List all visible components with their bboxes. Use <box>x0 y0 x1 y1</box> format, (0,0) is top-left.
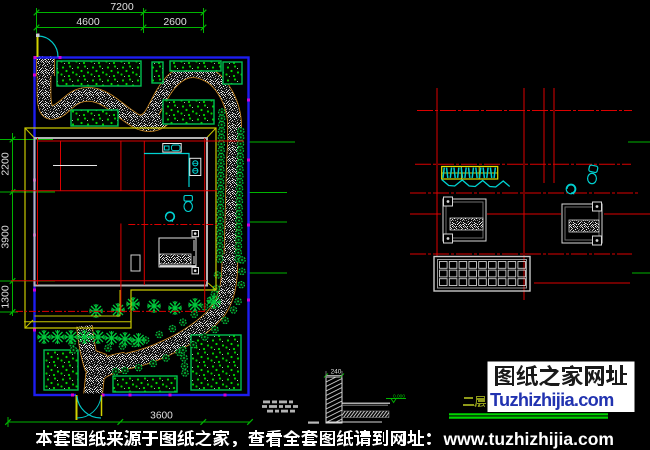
svg-text:2200: 2200 <box>0 152 12 176</box>
svg-text:Tuzhizhijia.com: Tuzhizhijia.com <box>490 390 614 410</box>
svg-text:3900: 3900 <box>0 225 12 249</box>
svg-text:240: 240 <box>331 369 342 376</box>
svg-text:www.tuzhizhijia.com: www.tuzhizhijia.com <box>443 429 614 449</box>
svg-text:1300: 1300 <box>0 285 12 309</box>
svg-text:3600: 3600 <box>150 411 173 422</box>
svg-text:0.000: 0.000 <box>393 394 405 400</box>
svg-text:2600: 2600 <box>163 16 187 28</box>
svg-text:4600: 4600 <box>76 16 100 28</box>
svg-text:7200: 7200 <box>110 1 134 13</box>
